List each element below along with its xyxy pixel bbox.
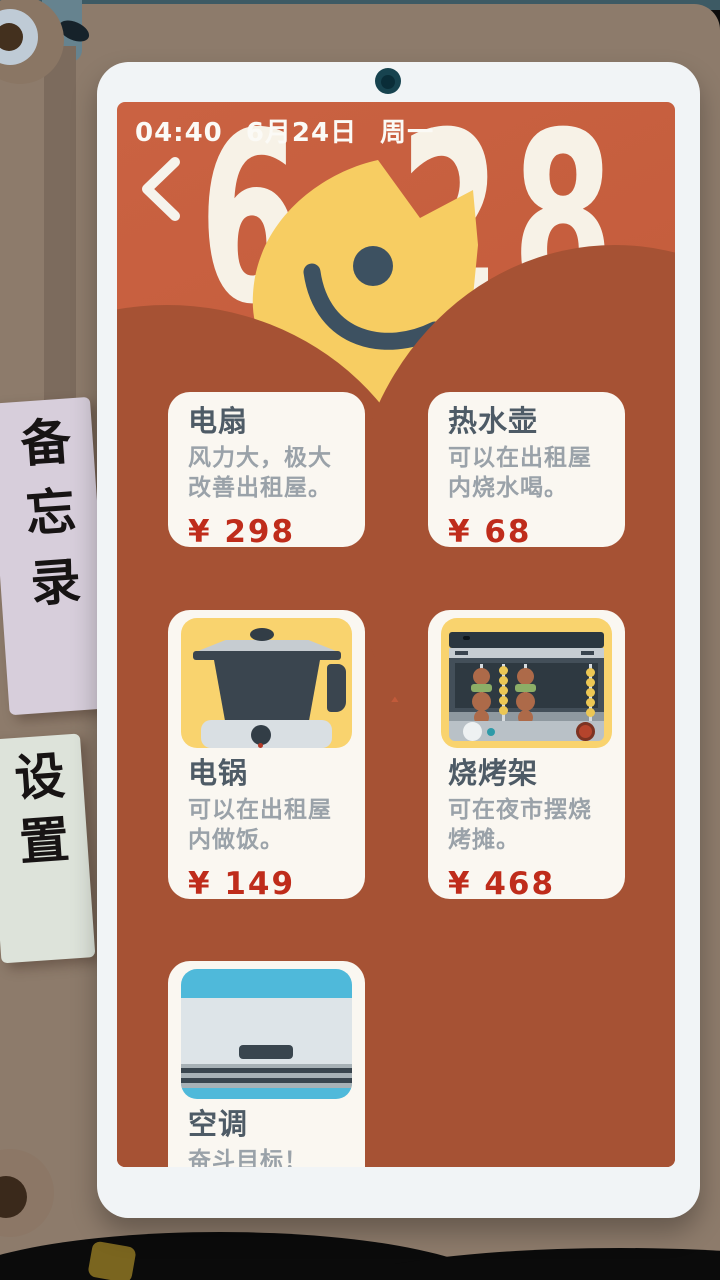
item-price: ¥ 468 [448,866,605,899]
back-button[interactable] [137,156,183,222]
air-conditioner-image [181,969,352,1099]
status-time: 04:40 [135,118,223,148]
item-name: 热水壶 [448,406,605,438]
shop-item-card-grill[interactable]: 烧烤架 可在夜市摆烧烤摊。 ¥ 468 [428,610,625,899]
item-desc: 可以在出租屋内做饭。 [188,796,345,856]
item-desc: 可以在出租屋内烧水喝。 [448,444,605,504]
shop-item-card-pot[interactable]: 电锅 可以在出租屋内做饭。 ¥ 149 [168,610,365,899]
camera-dot-icon [375,68,401,94]
item-name: 烧烤架 [448,758,605,790]
item-desc: 奋斗目标！ [188,1147,345,1167]
memo-tab-label: 备忘录 [15,415,86,714]
settings-tab-label: 设置 [9,749,74,962]
item-price: ¥ 149 [188,866,345,899]
item-desc: 风力大，极大改善出租屋。 [188,444,345,504]
item-name: 电扇 [188,406,345,438]
phone-screen: 6 2 8 电扇 风力大，极大改善出租屋。 ¥ 298 [117,102,675,1167]
shop-item-card-kettle[interactable]: 热水壶 可以在出租屋内烧水喝。 ¥ 68 [428,392,625,547]
item-price: ¥ 298 [188,514,345,547]
item-name: 电锅 [188,758,345,790]
table-leg [87,1240,137,1280]
shop-item-card-ac[interactable]: 空调 奋斗目标！ [168,961,365,1167]
phone-frame: 6 2 8 电扇 风力大，极大改善出租屋。 ¥ 298 [97,62,700,1218]
camera-lens [381,75,395,89]
item-desc: 可在夜市摆烧烤摊。 [448,796,605,856]
back-chevron-icon [137,156,183,222]
bbq-grill-image [441,618,612,748]
game-scene: 备忘录 设置 6 2 8 电扇 风力大，极大改善出租屋。 [0,0,720,1280]
item-name: 空调 [188,1109,345,1141]
status-date: 6月24日 [246,118,357,148]
shop-item-card-fan[interactable]: 电扇 风力大，极大改善出租屋。 ¥ 298 [168,392,365,547]
board-strap [44,46,76,426]
mascot-eye [353,246,393,286]
status-weekday: 周一 [380,118,434,148]
item-price: ¥ 68 [448,514,605,547]
status-bar: 04:40 6月24日 周一 [135,112,447,149]
sidebar-tab-settings[interactable]: 设置 [0,733,95,963]
electric-pot-image [181,618,352,748]
